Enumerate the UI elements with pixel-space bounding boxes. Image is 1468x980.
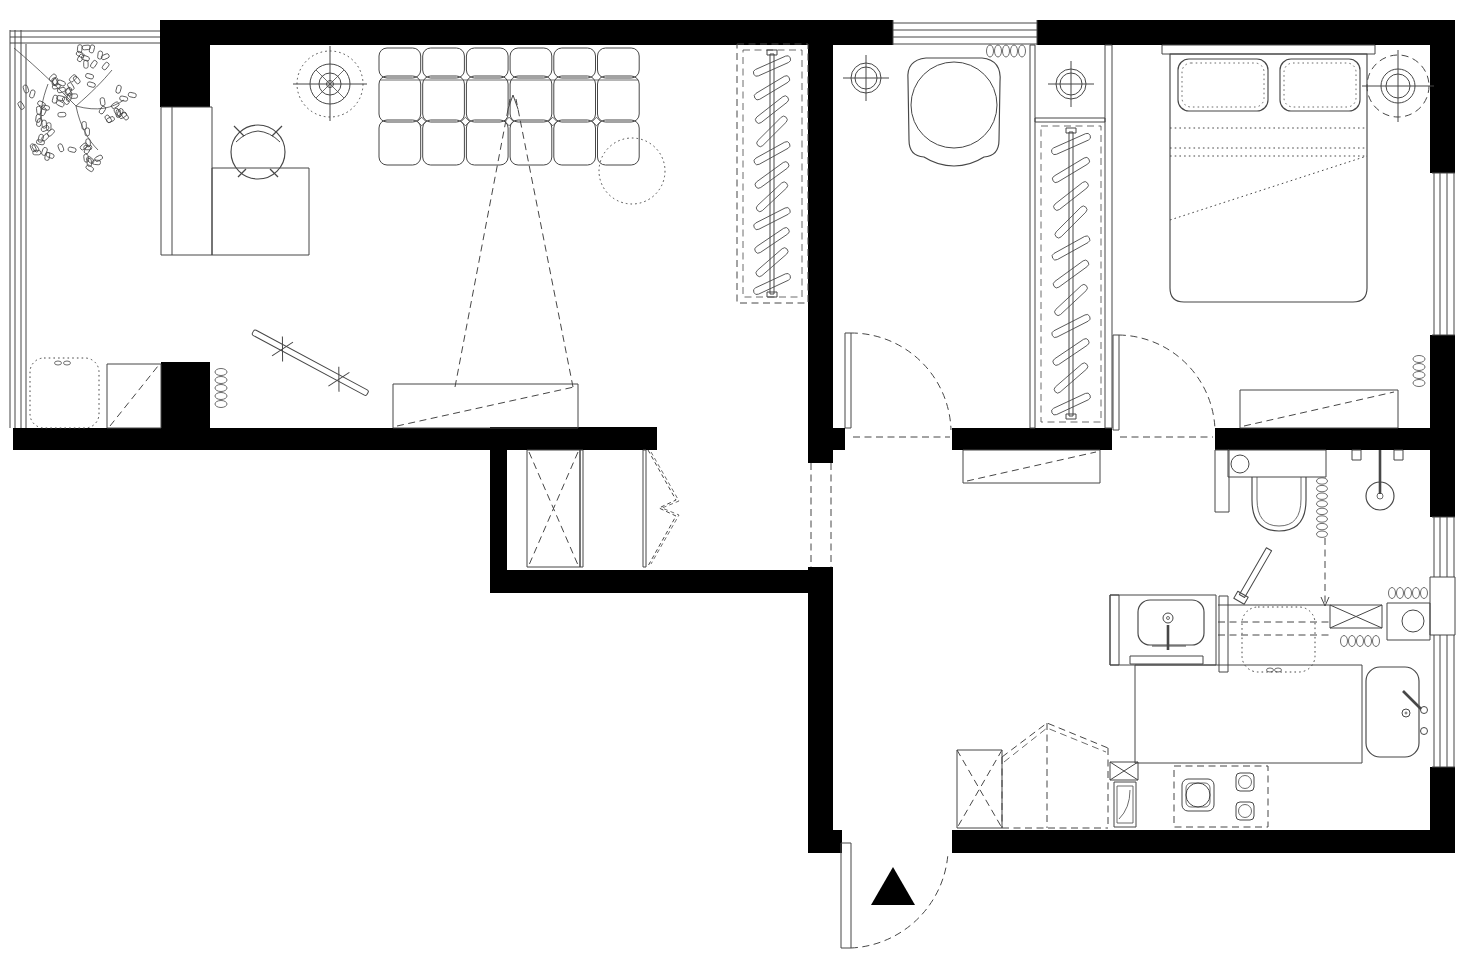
console-table [963, 450, 1100, 483]
tv-viewing-cone [455, 95, 573, 387]
round-side-table [599, 138, 665, 204]
built-in-closet [527, 450, 646, 567]
small-bedroom [843, 45, 1026, 430]
hallway [527, 437, 1213, 567]
floor-drain [1231, 455, 1249, 473]
counter-table [1135, 665, 1362, 763]
kitchen-radiator-upper-icon [1389, 588, 1428, 599]
kitchen-entry [841, 588, 1430, 949]
gas-hob [1174, 766, 1268, 827]
kitchen-sink [1366, 667, 1428, 757]
shower [1352, 450, 1403, 510]
bath-mat [1130, 656, 1203, 664]
bifold-door [648, 450, 679, 566]
armchair [908, 58, 1000, 166]
wardrobe-hanging-rail [737, 44, 808, 303]
vanity-basin [1110, 595, 1216, 665]
bathroom-door-leaf [1234, 546, 1274, 604]
pouf [30, 358, 99, 428]
small-bedroom-radiator-icon [987, 45, 1026, 57]
ceiling-light-icon [843, 55, 889, 101]
main-bedroom [1113, 45, 1434, 430]
bedroom-radiator-icon [1413, 356, 1425, 387]
ceiling-fan-light-icon [293, 46, 367, 121]
passage-opening [811, 463, 831, 567]
small-bedroom-window [893, 20, 1037, 45]
living-room [14, 44, 808, 428]
bathroom [1110, 450, 1403, 672]
pillow-left [1178, 59, 1268, 111]
kitchen-side-window-lower [1432, 635, 1455, 767]
dresser [1240, 390, 1398, 428]
walls [13, 20, 1455, 853]
closet-hanging-rail [1041, 126, 1101, 422]
walk-in-closet [1030, 45, 1112, 428]
fold-down-table [1002, 723, 1108, 828]
water-heater [1387, 603, 1430, 640]
wall-mounted-rack [247, 323, 372, 404]
wall-niche [1430, 577, 1455, 635]
pillow-right [1280, 59, 1360, 111]
bedroom-door [1113, 335, 1215, 430]
entrance-arrow [871, 867, 915, 905]
floor-plan-page [0, 0, 1468, 980]
living-room-radiator-icon [215, 369, 227, 408]
washing-machine [1218, 596, 1332, 672]
desk-chair [231, 125, 285, 179]
crossed-base-cabinet [957, 750, 1002, 828]
kitchen-side-window-upper [1432, 517, 1455, 577]
double-bed [1162, 45, 1375, 302]
crossed-cabinet [1330, 605, 1382, 628]
small-bedroom-door [845, 333, 951, 430]
corner-desk [161, 107, 309, 255]
cistern-shelf [1215, 450, 1229, 512]
floor-plan-drawing [0, 0, 1468, 980]
towel-radiator-icon [1317, 478, 1328, 538]
glass-screen [1321, 538, 1329, 606]
potted-plant-icon [14, 44, 137, 172]
kitchen-radiator-lower-icon [1341, 636, 1380, 647]
closet-ceiling-light-icon [1048, 61, 1094, 107]
storage-cabinet [107, 364, 161, 428]
tall-appliance [1110, 762, 1138, 827]
bedroom-ceiling-light-icon [1362, 50, 1434, 122]
toilet [1228, 450, 1326, 531]
tv-stand [393, 384, 578, 428]
bedroom-side-window [1432, 173, 1455, 335]
